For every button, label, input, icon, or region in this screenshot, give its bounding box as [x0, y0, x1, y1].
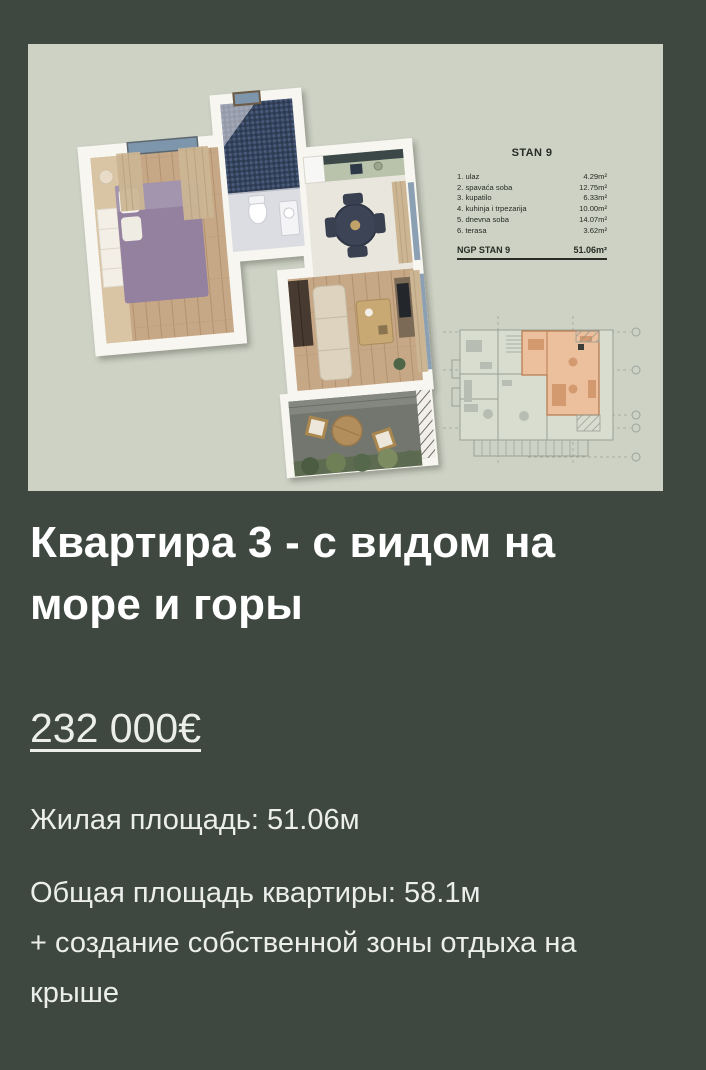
room-area: 14.07m²: [579, 215, 607, 226]
room-label: 4. kuhinja i trpezarija: [457, 204, 527, 215]
room-area: 10.00m²: [579, 204, 607, 215]
total-area-line: Общая площадь квартиры: 58.1м: [30, 877, 480, 909]
listing-page: STAN 9 1. ulaz 4.29m² 2. spavaća soba 12…: [0, 0, 706, 1070]
page-title: Квартира 3 - с видом на море и горы: [30, 512, 650, 636]
legend-room-row: 6. terasa 3.62m²: [457, 226, 607, 237]
floorplan-3d: [74, 78, 441, 491]
floorplan-legend: STAN 9 1. ulaz 4.29m² 2. spavaća soba 12…: [457, 147, 607, 260]
living-area-text: Жилая площадь: 51.06м: [30, 802, 360, 838]
room-label: 3. kupatilo: [457, 193, 492, 204]
floorplan-2d: [443, 316, 640, 464]
price-link[interactable]: 232 000€: [30, 703, 201, 753]
legend-room-row: 5. dnevna soba 14.07m²: [457, 215, 607, 226]
kitchen-dining-3d: [303, 148, 421, 277]
terrace-3d: [288, 389, 436, 477]
room-label: 1. ulaz: [457, 172, 479, 183]
living-room-3d: [288, 268, 433, 391]
room-label: 6. terasa: [457, 226, 487, 237]
bathroom-3d: [219, 88, 304, 252]
room-label: 2. spavaća soba: [457, 183, 512, 194]
room-area: 12.75m²: [579, 183, 607, 194]
room-area: 3.62m²: [583, 226, 607, 237]
room-label: 5. dnevna soba: [457, 215, 509, 226]
bedroom-3d: [89, 135, 234, 343]
legend-room-row: 2. spavaća soba 12.75m²: [457, 183, 607, 194]
legend-room-row: 1. ulaz 4.29m²: [457, 172, 607, 183]
floorplan-image[interactable]: STAN 9 1. ulaz 4.29m² 2. spavaća soba 12…: [28, 44, 663, 491]
room-area: 6.33m²: [583, 193, 607, 204]
roof-bonus-line: + создание собственной зоны отдыха на кр…: [30, 927, 576, 1009]
legend-title: STAN 9: [457, 147, 607, 159]
legend-room-row: 3. kupatilo 6.33m²: [457, 193, 607, 204]
total-area-text: Общая площадь квартиры: 58.1м + создание…: [30, 868, 630, 1018]
legend-total-area: 51.06m²: [573, 245, 607, 255]
legend-total-row: NGP STAN 9 51.06m²: [457, 245, 607, 260]
floorplan-render: [28, 44, 663, 491]
room-area: 4.29m²: [583, 172, 607, 183]
legend-total-label: NGP STAN 9: [457, 245, 510, 255]
legend-room-row: 4. kuhinja i trpezarija 10.00m²: [457, 204, 607, 215]
